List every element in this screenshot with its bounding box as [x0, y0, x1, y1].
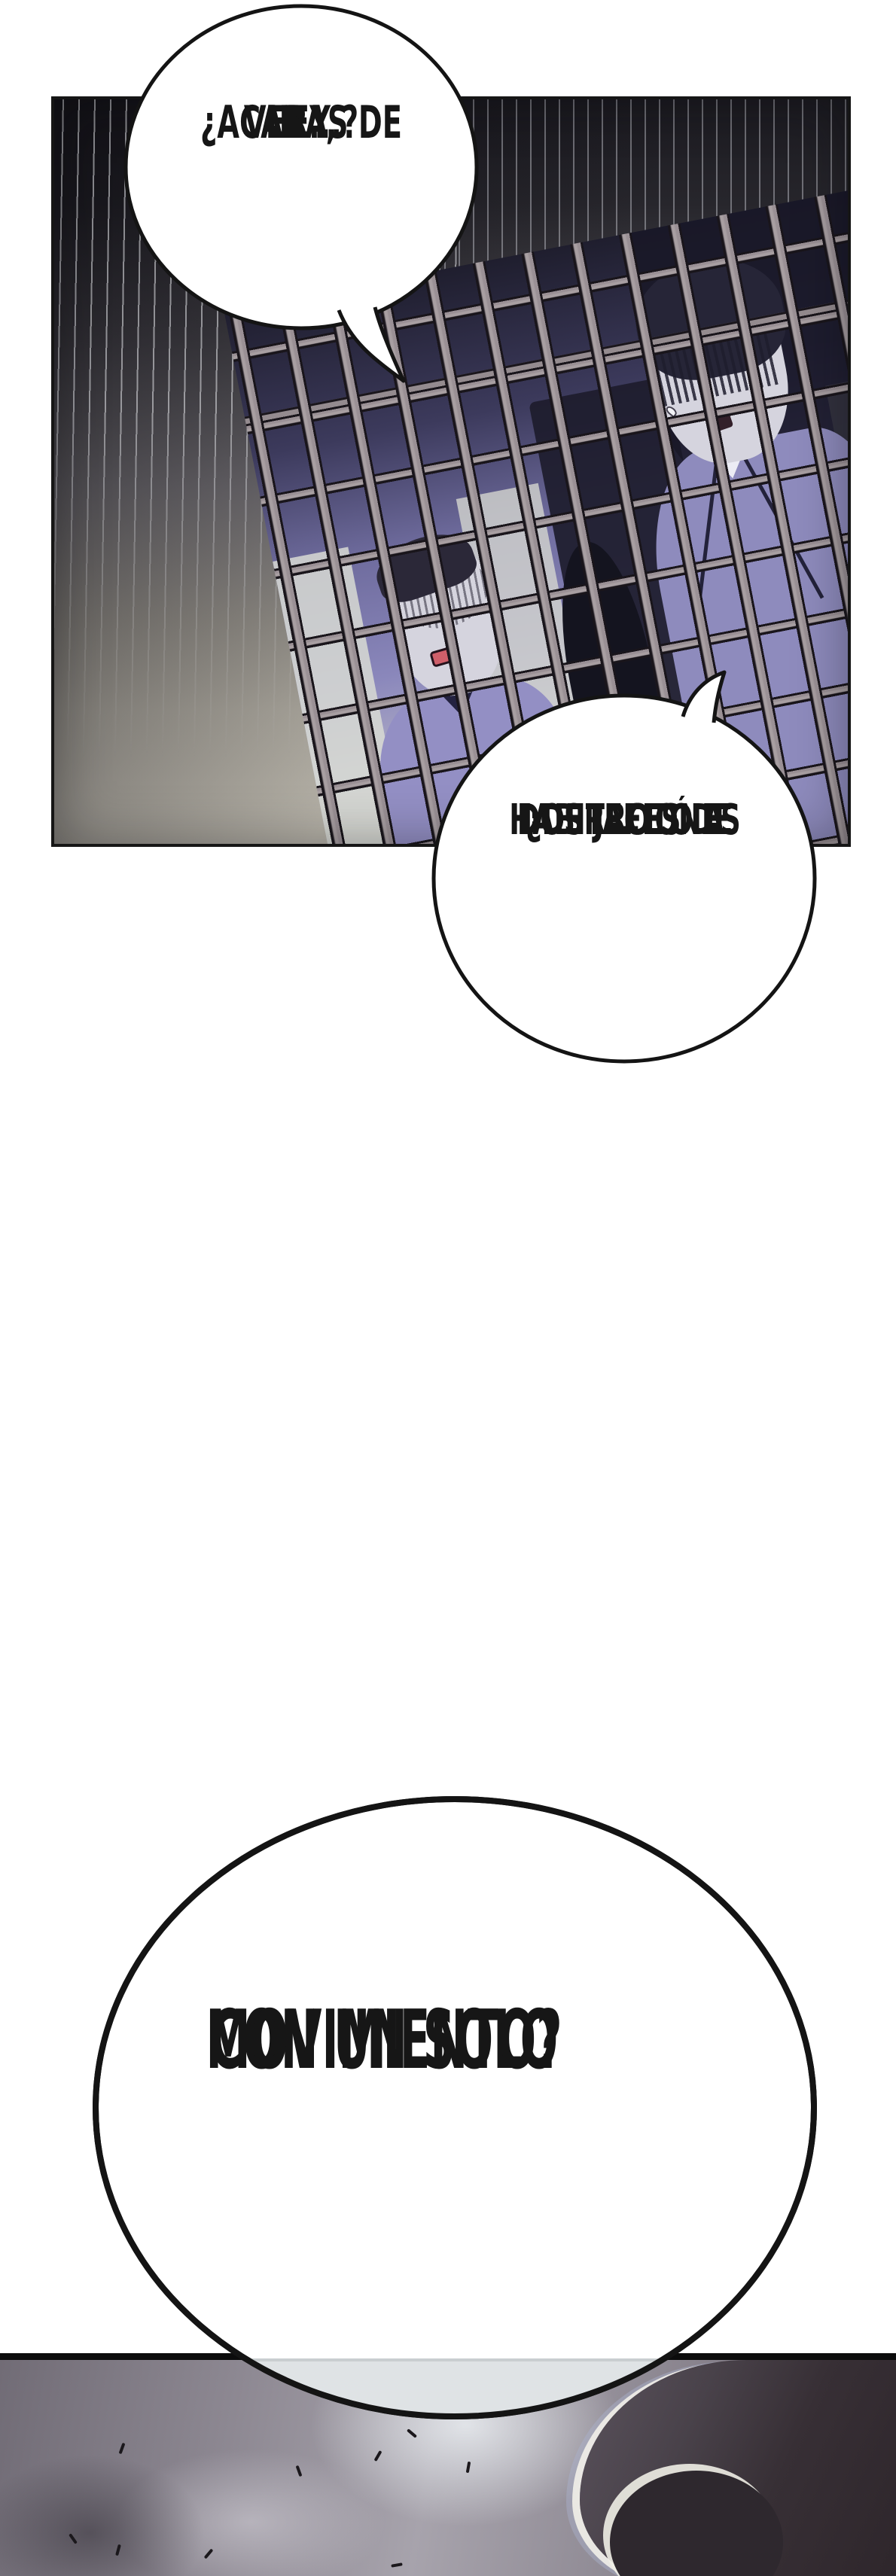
speech-bubble-top-left [113, 0, 489, 391]
speech-bubble-mid-right [422, 647, 832, 1076]
bubble-tail [339, 307, 404, 381]
bubble-wash [90, 2358, 824, 2433]
bubble-tail [683, 672, 724, 723]
comic-page: HEY, ¿ACABAS DE VER...? ¿DERROTÓ A DOS J… [0, 0, 896, 2576]
speech-line: MOVIMIENTO? [206, 1991, 562, 2090]
speech-line: VER...? [244, 99, 358, 147]
speech-line: ... [609, 798, 641, 842]
speech-bubble-big [90, 1793, 824, 2433]
